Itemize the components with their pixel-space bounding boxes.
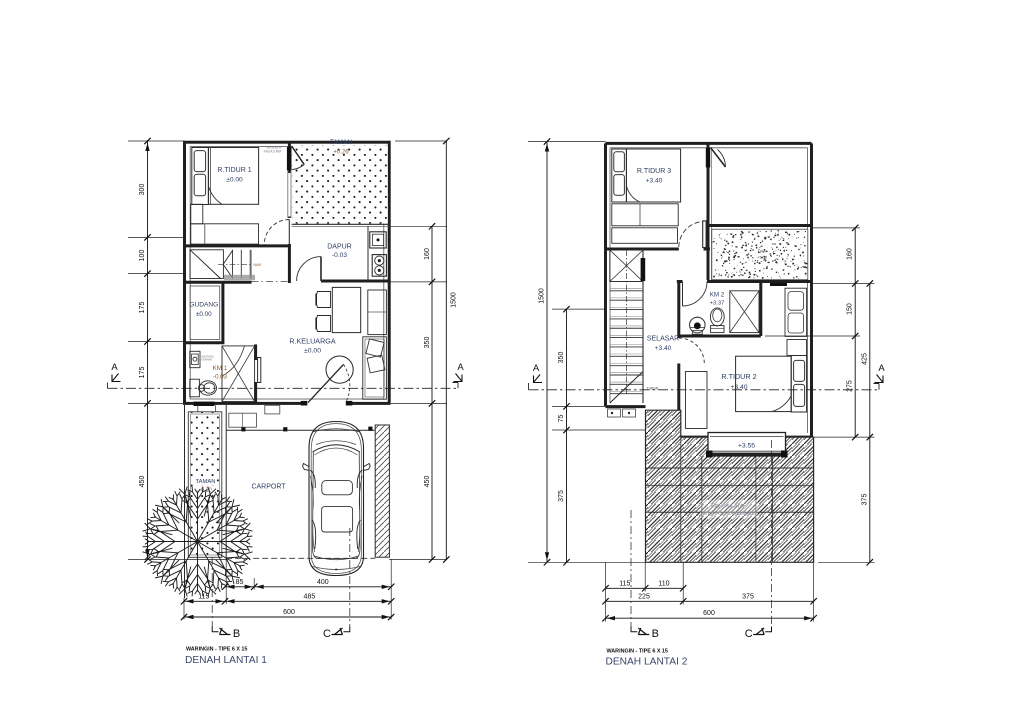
svg-text:GUDANG: GUDANG [189, 302, 218, 309]
svg-text:400: 400 [317, 579, 329, 586]
svg-text:+3.38: +3.38 [757, 255, 768, 260]
svg-text:-0.03: -0.03 [213, 374, 228, 381]
svg-text:ATAP POLYCARBONATE: ATAP POLYCARBONATE [703, 511, 756, 516]
svg-text:TAMAN: TAMAN [196, 479, 216, 485]
svg-text:KM 2: KM 2 [710, 292, 725, 299]
svg-text:350: 350 [424, 337, 431, 349]
svg-text:375: 375 [742, 593, 754, 600]
svg-text:A: A [457, 362, 464, 373]
svg-text:450: 450 [424, 476, 431, 488]
svg-text:150: 150 [847, 303, 854, 315]
svg-text:±0.00: ±0.00 [304, 348, 321, 355]
svg-text:NAIK: NAIK [254, 263, 263, 267]
svg-text:485: 485 [304, 594, 316, 601]
svg-text:TAMAN: TAMAN [330, 139, 352, 146]
svg-text:R.TIDUR 1: R.TIDUR 1 [217, 167, 251, 174]
svg-text:DAPUR: DAPUR [327, 244, 352, 251]
svg-text:KACA 5 MM: KACA 5 MM [264, 150, 282, 154]
svg-text:DENAH LANTAI 1: DENAH LANTAI 1 [185, 655, 267, 666]
svg-text:KERAMIK: KERAMIK [202, 359, 213, 362]
svg-text:100: 100 [139, 250, 146, 262]
svg-text:+3.40: +3.40 [646, 178, 663, 185]
svg-text:350: 350 [558, 352, 565, 364]
svg-text:DAK: DAK [758, 249, 767, 254]
svg-text:A: A [533, 363, 540, 374]
svg-text:A: A [111, 362, 118, 373]
svg-text:A: A [878, 363, 885, 374]
svg-text:C: C [745, 628, 753, 640]
svg-text:300: 300 [139, 184, 146, 196]
svg-text:RANGKA ATAP: RANGKA ATAP [711, 504, 747, 510]
svg-text:C: C [323, 628, 331, 640]
svg-text:115: 115 [619, 580, 630, 587]
svg-text:SELASAR: SELASAR [647, 336, 679, 343]
svg-text:600: 600 [283, 609, 295, 616]
svg-text:600: 600 [703, 610, 715, 617]
svg-text:225: 225 [638, 593, 650, 600]
svg-text:1500: 1500 [539, 288, 546, 304]
svg-text:85: 85 [236, 579, 244, 586]
svg-text:+3.55: +3.55 [738, 443, 755, 450]
svg-text:WARINGIN - TIPE 6 X 15: WARINGIN - TIPE 6 X 15 [607, 649, 668, 655]
svg-text:WARINGIN - TIPE 6 X 15: WARINGIN - TIPE 6 X 15 [186, 647, 247, 653]
svg-text:B: B [652, 628, 659, 640]
svg-text:375: 375 [558, 490, 565, 502]
svg-text:110: 110 [658, 580, 669, 587]
svg-text:1500: 1500 [451, 292, 458, 308]
svg-text:KM 1: KM 1 [213, 365, 228, 372]
svg-text:+0.26: +0.26 [333, 149, 349, 155]
svg-text:+3.37: +3.37 [710, 301, 725, 307]
svg-text:160: 160 [424, 248, 431, 260]
svg-text:115: 115 [198, 594, 209, 601]
svg-text:±0.00: ±0.00 [196, 311, 212, 318]
svg-text:160: 160 [847, 248, 854, 260]
svg-text:75: 75 [558, 415, 565, 423]
svg-text:R.KELUARGA: R.KELUARGA [289, 337, 336, 346]
svg-text:B: B [233, 628, 240, 640]
svg-text:375: 375 [861, 494, 868, 506]
svg-text:R.TIDUR 3: R.TIDUR 3 [637, 168, 671, 175]
svg-text:CARPORT: CARPORT [251, 484, 286, 491]
svg-text:R.TIDUR 2: R.TIDUR 2 [721, 372, 756, 381]
svg-text:175: 175 [139, 367, 146, 379]
svg-text:+3.40: +3.40 [655, 345, 672, 352]
svg-text:±0.00: ±0.00 [226, 177, 243, 184]
svg-text:-0.03: -0.03 [332, 252, 347, 259]
svg-text:425: 425 [861, 353, 868, 365]
svg-text:175: 175 [139, 302, 146, 314]
svg-text:450: 450 [139, 476, 146, 488]
svg-text:DENAH LANTAI 2: DENAH LANTAI 2 [606, 657, 688, 668]
